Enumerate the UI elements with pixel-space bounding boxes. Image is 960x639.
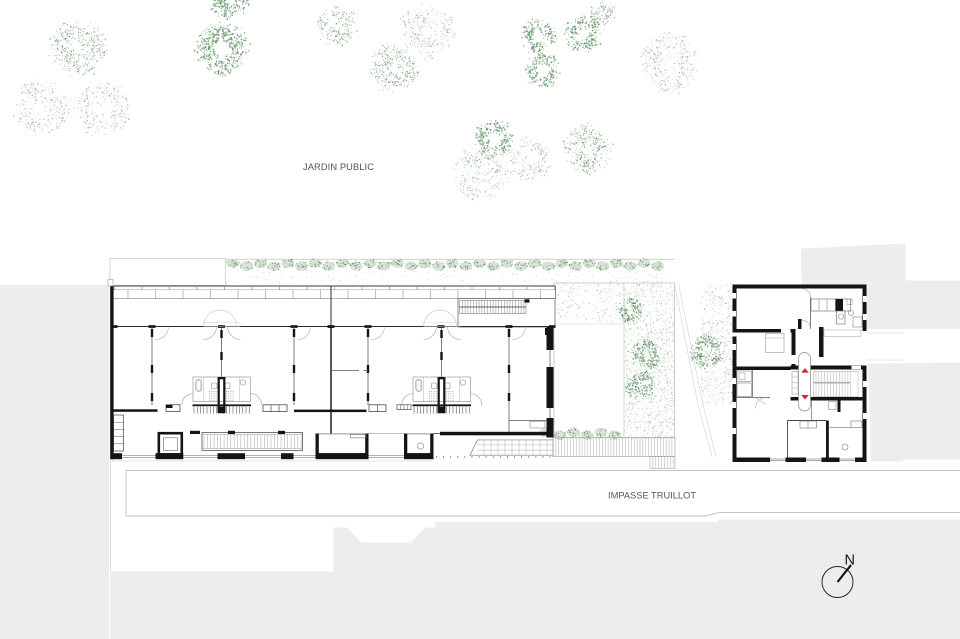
svg-text:N: N xyxy=(845,553,855,569)
svg-text:IMPASSE TRUILLOT: IMPASSE TRUILLOT xyxy=(608,491,696,501)
svg-text:JARDIN PUBLIC: JARDIN PUBLIC xyxy=(303,162,374,172)
